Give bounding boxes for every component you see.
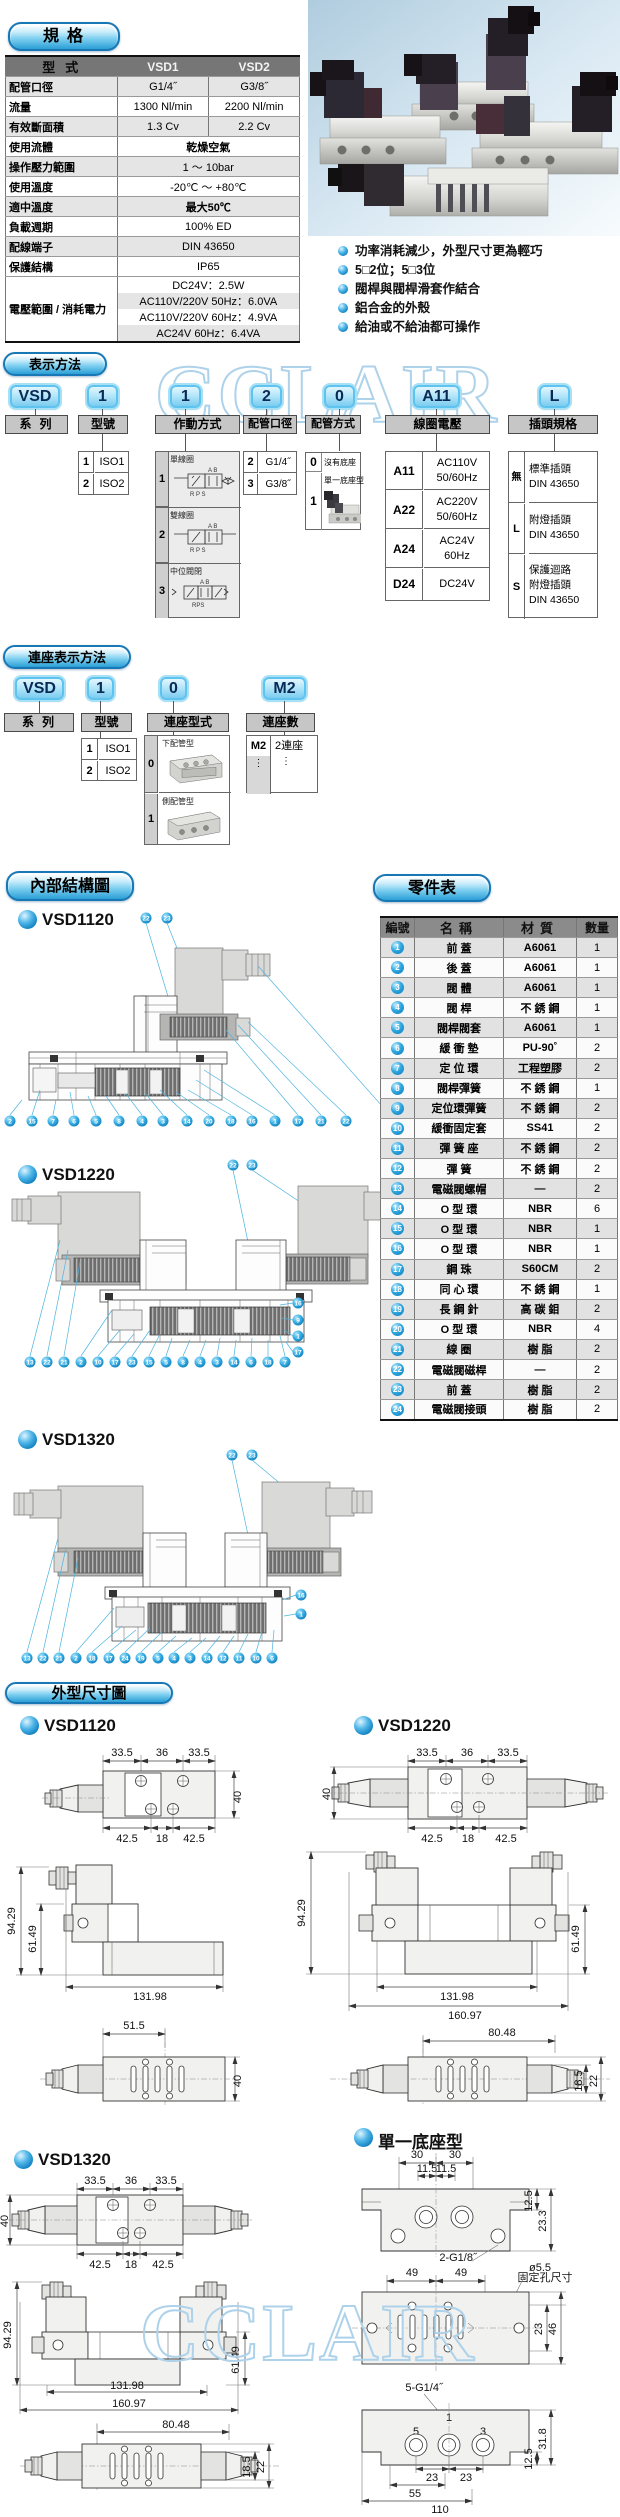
svg-text:21: 21 [60, 1360, 68, 1367]
svg-text:40: 40 [232, 2075, 244, 2087]
svg-text:固定孔尺寸: 固定孔尺寸 [518, 2270, 573, 2284]
svg-text:6: 6 [249, 1360, 253, 1367]
svg-text:A B: A B [200, 580, 209, 586]
svg-text:160.97: 160.97 [112, 2398, 146, 2410]
svg-text:22: 22 [255, 2461, 267, 2473]
svg-text:22: 22 [39, 1656, 47, 1663]
svg-text:42.5: 42.5 [495, 1833, 516, 1845]
svg-text:17: 17 [294, 1350, 302, 1357]
svg-text:18: 18 [227, 1119, 235, 1126]
svg-text:21: 21 [55, 1656, 63, 1663]
svg-text:33.5: 33.5 [416, 1747, 437, 1759]
svg-text:13: 13 [23, 1656, 31, 1663]
svg-text:21: 21 [317, 1119, 325, 1126]
svg-text:42.5: 42.5 [116, 1833, 137, 1845]
svg-text:23: 23 [163, 916, 171, 923]
svg-text:94.29: 94.29 [6, 1907, 18, 1935]
svg-text:42.5: 42.5 [421, 1833, 442, 1845]
svg-text:23.3: 23.3 [537, 2210, 549, 2231]
svg-text:2-G1/8˝: 2-G1/8˝ [439, 2252, 478, 2264]
svg-text:23: 23 [248, 1453, 256, 1460]
svg-text:20: 20 [205, 1119, 213, 1126]
svg-text:3: 3 [161, 1119, 165, 1126]
svg-text:18.5: 18.5 [241, 2456, 253, 2477]
svg-text:33.5: 33.5 [155, 2175, 176, 2187]
svg-text:11: 11 [236, 1656, 243, 1663]
svg-text:18: 18 [88, 1656, 96, 1663]
svg-text:94.29: 94.29 [2, 2321, 14, 2349]
svg-text:2: 2 [79, 1360, 83, 1367]
svg-text:8: 8 [181, 1360, 185, 1367]
svg-text:80.48: 80.48 [488, 2027, 516, 2039]
svg-text:42.5: 42.5 [152, 2259, 173, 2271]
svg-text:22: 22 [588, 2075, 600, 2087]
svg-text:49: 49 [406, 2267, 418, 2279]
svg-text:17: 17 [111, 1360, 119, 1367]
svg-text:24: 24 [121, 1656, 129, 1663]
svg-text:4: 4 [140, 1119, 144, 1126]
svg-text:22: 22 [228, 1453, 236, 1460]
svg-text:2: 2 [8, 1119, 12, 1126]
svg-text:40: 40 [232, 1791, 244, 1803]
svg-text:2: 2 [74, 1656, 78, 1663]
svg-text:A B: A B [208, 524, 217, 530]
svg-text:131.98: 131.98 [110, 2380, 144, 2392]
svg-text:55: 55 [409, 2488, 421, 2500]
svg-text:36: 36 [461, 1747, 473, 1759]
svg-text:10: 10 [252, 1656, 260, 1663]
svg-text:12.5: 12.5 [523, 2190, 535, 2211]
svg-text:14: 14 [183, 1119, 191, 1126]
svg-text:30: 30 [411, 2149, 423, 2161]
svg-text:16: 16 [297, 1593, 305, 1600]
svg-text:160.97: 160.97 [448, 2010, 482, 2022]
svg-text:61.49: 61.49 [570, 1925, 582, 1953]
svg-text:11.5: 11.5 [417, 2163, 438, 2175]
svg-text:23: 23 [248, 1163, 256, 1170]
svg-text:16: 16 [248, 1119, 256, 1126]
svg-text:R P S: R P S [190, 548, 206, 554]
svg-text:14: 14 [230, 1360, 238, 1367]
svg-text:22: 22 [43, 1360, 51, 1367]
svg-text:9: 9 [296, 1318, 300, 1325]
svg-text:7: 7 [283, 1360, 287, 1367]
svg-text:18: 18 [125, 2259, 137, 2271]
svg-text:40: 40 [321, 1788, 333, 1800]
svg-text:3: 3 [188, 1656, 192, 1663]
svg-text:5-G1/4˝: 5-G1/4˝ [405, 2382, 444, 2394]
svg-text:19: 19 [137, 1656, 145, 1663]
svg-text:36: 36 [125, 2175, 137, 2187]
svg-text:14: 14 [203, 1656, 211, 1663]
svg-text:13: 13 [26, 1360, 34, 1367]
svg-text:23: 23 [533, 2323, 545, 2335]
svg-text:7: 7 [51, 1119, 55, 1126]
svg-text:22: 22 [229, 1163, 237, 1170]
svg-text:33.5: 33.5 [188, 1747, 209, 1759]
svg-text:4: 4 [172, 1656, 176, 1663]
svg-text:12.5: 12.5 [523, 2448, 535, 2469]
svg-text:11.5: 11.5 [436, 2163, 457, 2175]
svg-text:30: 30 [449, 2149, 461, 2161]
svg-text:RPS: RPS [192, 603, 204, 609]
svg-text:6: 6 [270, 1656, 274, 1663]
svg-text:12: 12 [219, 1656, 227, 1663]
svg-text:33.5: 33.5 [84, 2175, 105, 2187]
svg-text:18: 18 [264, 1360, 272, 1367]
svg-text:5: 5 [164, 1360, 168, 1367]
svg-text:6: 6 [72, 1119, 76, 1126]
svg-text:33.5: 33.5 [111, 1747, 132, 1759]
svg-text:1: 1 [273, 1119, 277, 1126]
svg-text:40: 40 [0, 2215, 11, 2227]
svg-text:110: 110 [431, 2504, 449, 2516]
svg-text:15: 15 [145, 1360, 153, 1367]
svg-text:17: 17 [105, 1656, 113, 1663]
svg-text:131.98: 131.98 [133, 1991, 167, 2003]
svg-text:18: 18 [156, 1833, 168, 1845]
svg-text:8: 8 [117, 1119, 121, 1126]
svg-text:5: 5 [94, 1119, 98, 1126]
svg-text:46: 46 [547, 2323, 559, 2335]
svg-text:61.49: 61.49 [27, 1925, 39, 1953]
svg-text:A B: A B [208, 468, 217, 474]
svg-text:16: 16 [294, 1301, 302, 1308]
svg-text:1: 1 [299, 1612, 303, 1619]
svg-text:131.98: 131.98 [440, 1991, 474, 2003]
svg-text:22: 22 [342, 1119, 350, 1126]
svg-text:10: 10 [94, 1360, 102, 1367]
svg-text:80.48: 80.48 [162, 2419, 190, 2431]
svg-text:18.5: 18.5 [573, 2070, 585, 2091]
svg-text:33.5: 33.5 [497, 1747, 518, 1759]
svg-text:3: 3 [215, 1360, 219, 1367]
svg-text:23: 23 [128, 1360, 136, 1367]
svg-text:22: 22 [142, 916, 150, 923]
svg-text:1: 1 [296, 1334, 300, 1341]
svg-text:5: 5 [156, 1656, 160, 1663]
svg-text:R P S: R P S [190, 492, 206, 498]
svg-text:42.5: 42.5 [89, 2259, 110, 2271]
svg-text:49: 49 [455, 2267, 467, 2279]
svg-text:4: 4 [198, 1360, 202, 1367]
svg-text:23: 23 [426, 2472, 438, 2484]
svg-text:15: 15 [28, 1119, 36, 1126]
svg-text:17: 17 [294, 1119, 302, 1126]
svg-text:51.5: 51.5 [123, 2020, 144, 2032]
svg-text:18: 18 [462, 1833, 474, 1845]
svg-text:36: 36 [156, 1747, 168, 1759]
svg-text:31.8: 31.8 [537, 2428, 549, 2449]
svg-text:23: 23 [460, 2472, 472, 2484]
svg-text:42.5: 42.5 [183, 1833, 204, 1845]
svg-text:94.29: 94.29 [296, 1899, 308, 1927]
